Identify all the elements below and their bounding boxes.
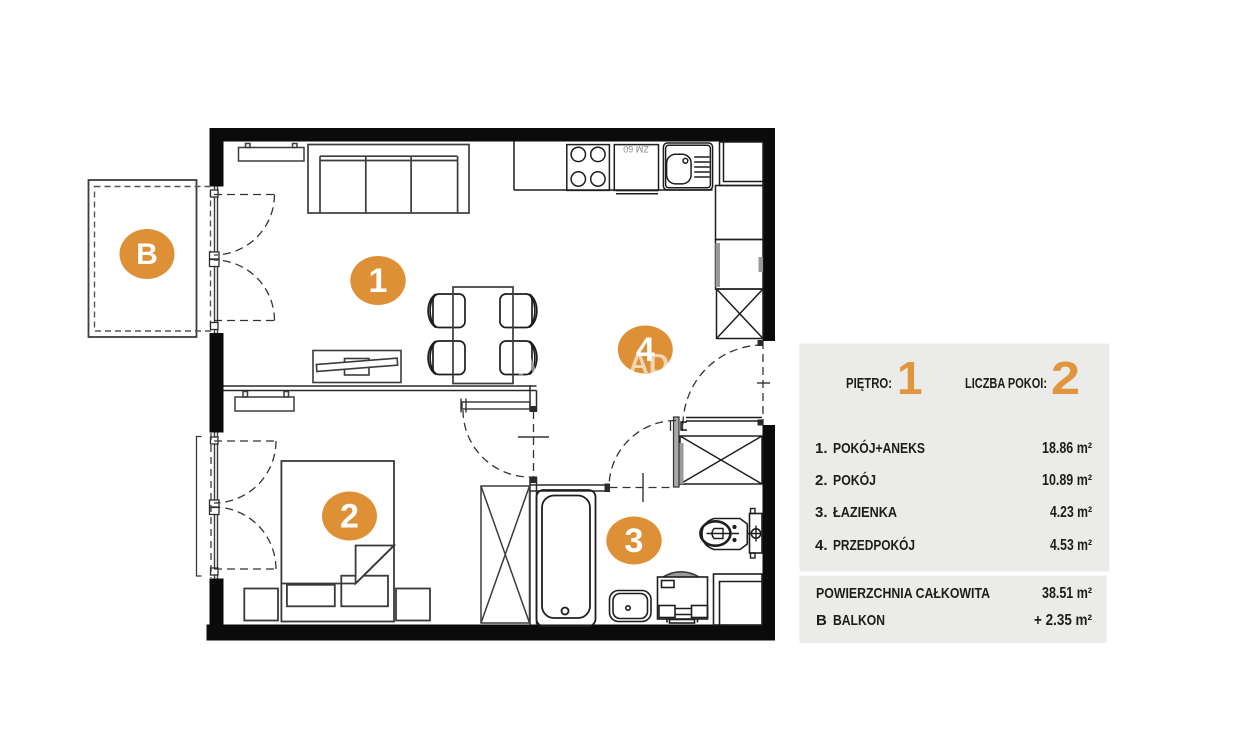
svg-text:A: A bbox=[518, 350, 538, 381]
svg-text:POWIERZCHNIA CAŁKOWITA: POWIERZCHNIA CAŁKOWITA bbox=[816, 585, 990, 602]
svg-text:ZM 60: ZM 60 bbox=[623, 144, 649, 154]
svg-text:1: 1 bbox=[369, 262, 388, 300]
svg-text:4.23 m²: 4.23 m² bbox=[1050, 504, 1092, 521]
svg-text:POKÓJ: POKÓJ bbox=[833, 471, 876, 489]
svg-text:2: 2 bbox=[340, 498, 359, 536]
svg-text:ŁAZIENKA: ŁAZIENKA bbox=[833, 504, 897, 521]
svg-text:38.51 m²: 38.51 m² bbox=[1042, 585, 1092, 602]
svg-text:3.: 3. bbox=[815, 504, 828, 521]
svg-text:B: B bbox=[816, 612, 827, 629]
svg-text:4.: 4. bbox=[815, 537, 828, 554]
svg-text:2.: 2. bbox=[815, 472, 828, 489]
svg-text:4.53 m²: 4.53 m² bbox=[1050, 537, 1092, 554]
svg-text:LICZBA POKOI:: LICZBA POKOI: bbox=[965, 375, 1047, 392]
svg-text:POKÓJ+ANEKS: POKÓJ+ANEKS bbox=[833, 439, 925, 457]
svg-text:3: 3 bbox=[625, 522, 644, 560]
svg-text:PIĘTRO:: PIĘTRO: bbox=[846, 375, 892, 392]
svg-text:BALKON: BALKON bbox=[833, 612, 885, 629]
svg-text:B: B bbox=[136, 238, 158, 271]
svg-text:18.86 m²: 18.86 m² bbox=[1042, 440, 1092, 457]
svg-text:AD: AD bbox=[629, 348, 669, 379]
svg-text:PRZEDPOKÓJ: PRZEDPOKÓJ bbox=[833, 536, 915, 554]
svg-text:1: 1 bbox=[897, 352, 923, 404]
svg-text:+ 2.35 m²: + 2.35 m² bbox=[1034, 612, 1092, 629]
svg-text:2: 2 bbox=[1051, 352, 1080, 404]
svg-text:10.89 m²: 10.89 m² bbox=[1042, 472, 1092, 489]
svg-text:1.: 1. bbox=[815, 440, 828, 457]
